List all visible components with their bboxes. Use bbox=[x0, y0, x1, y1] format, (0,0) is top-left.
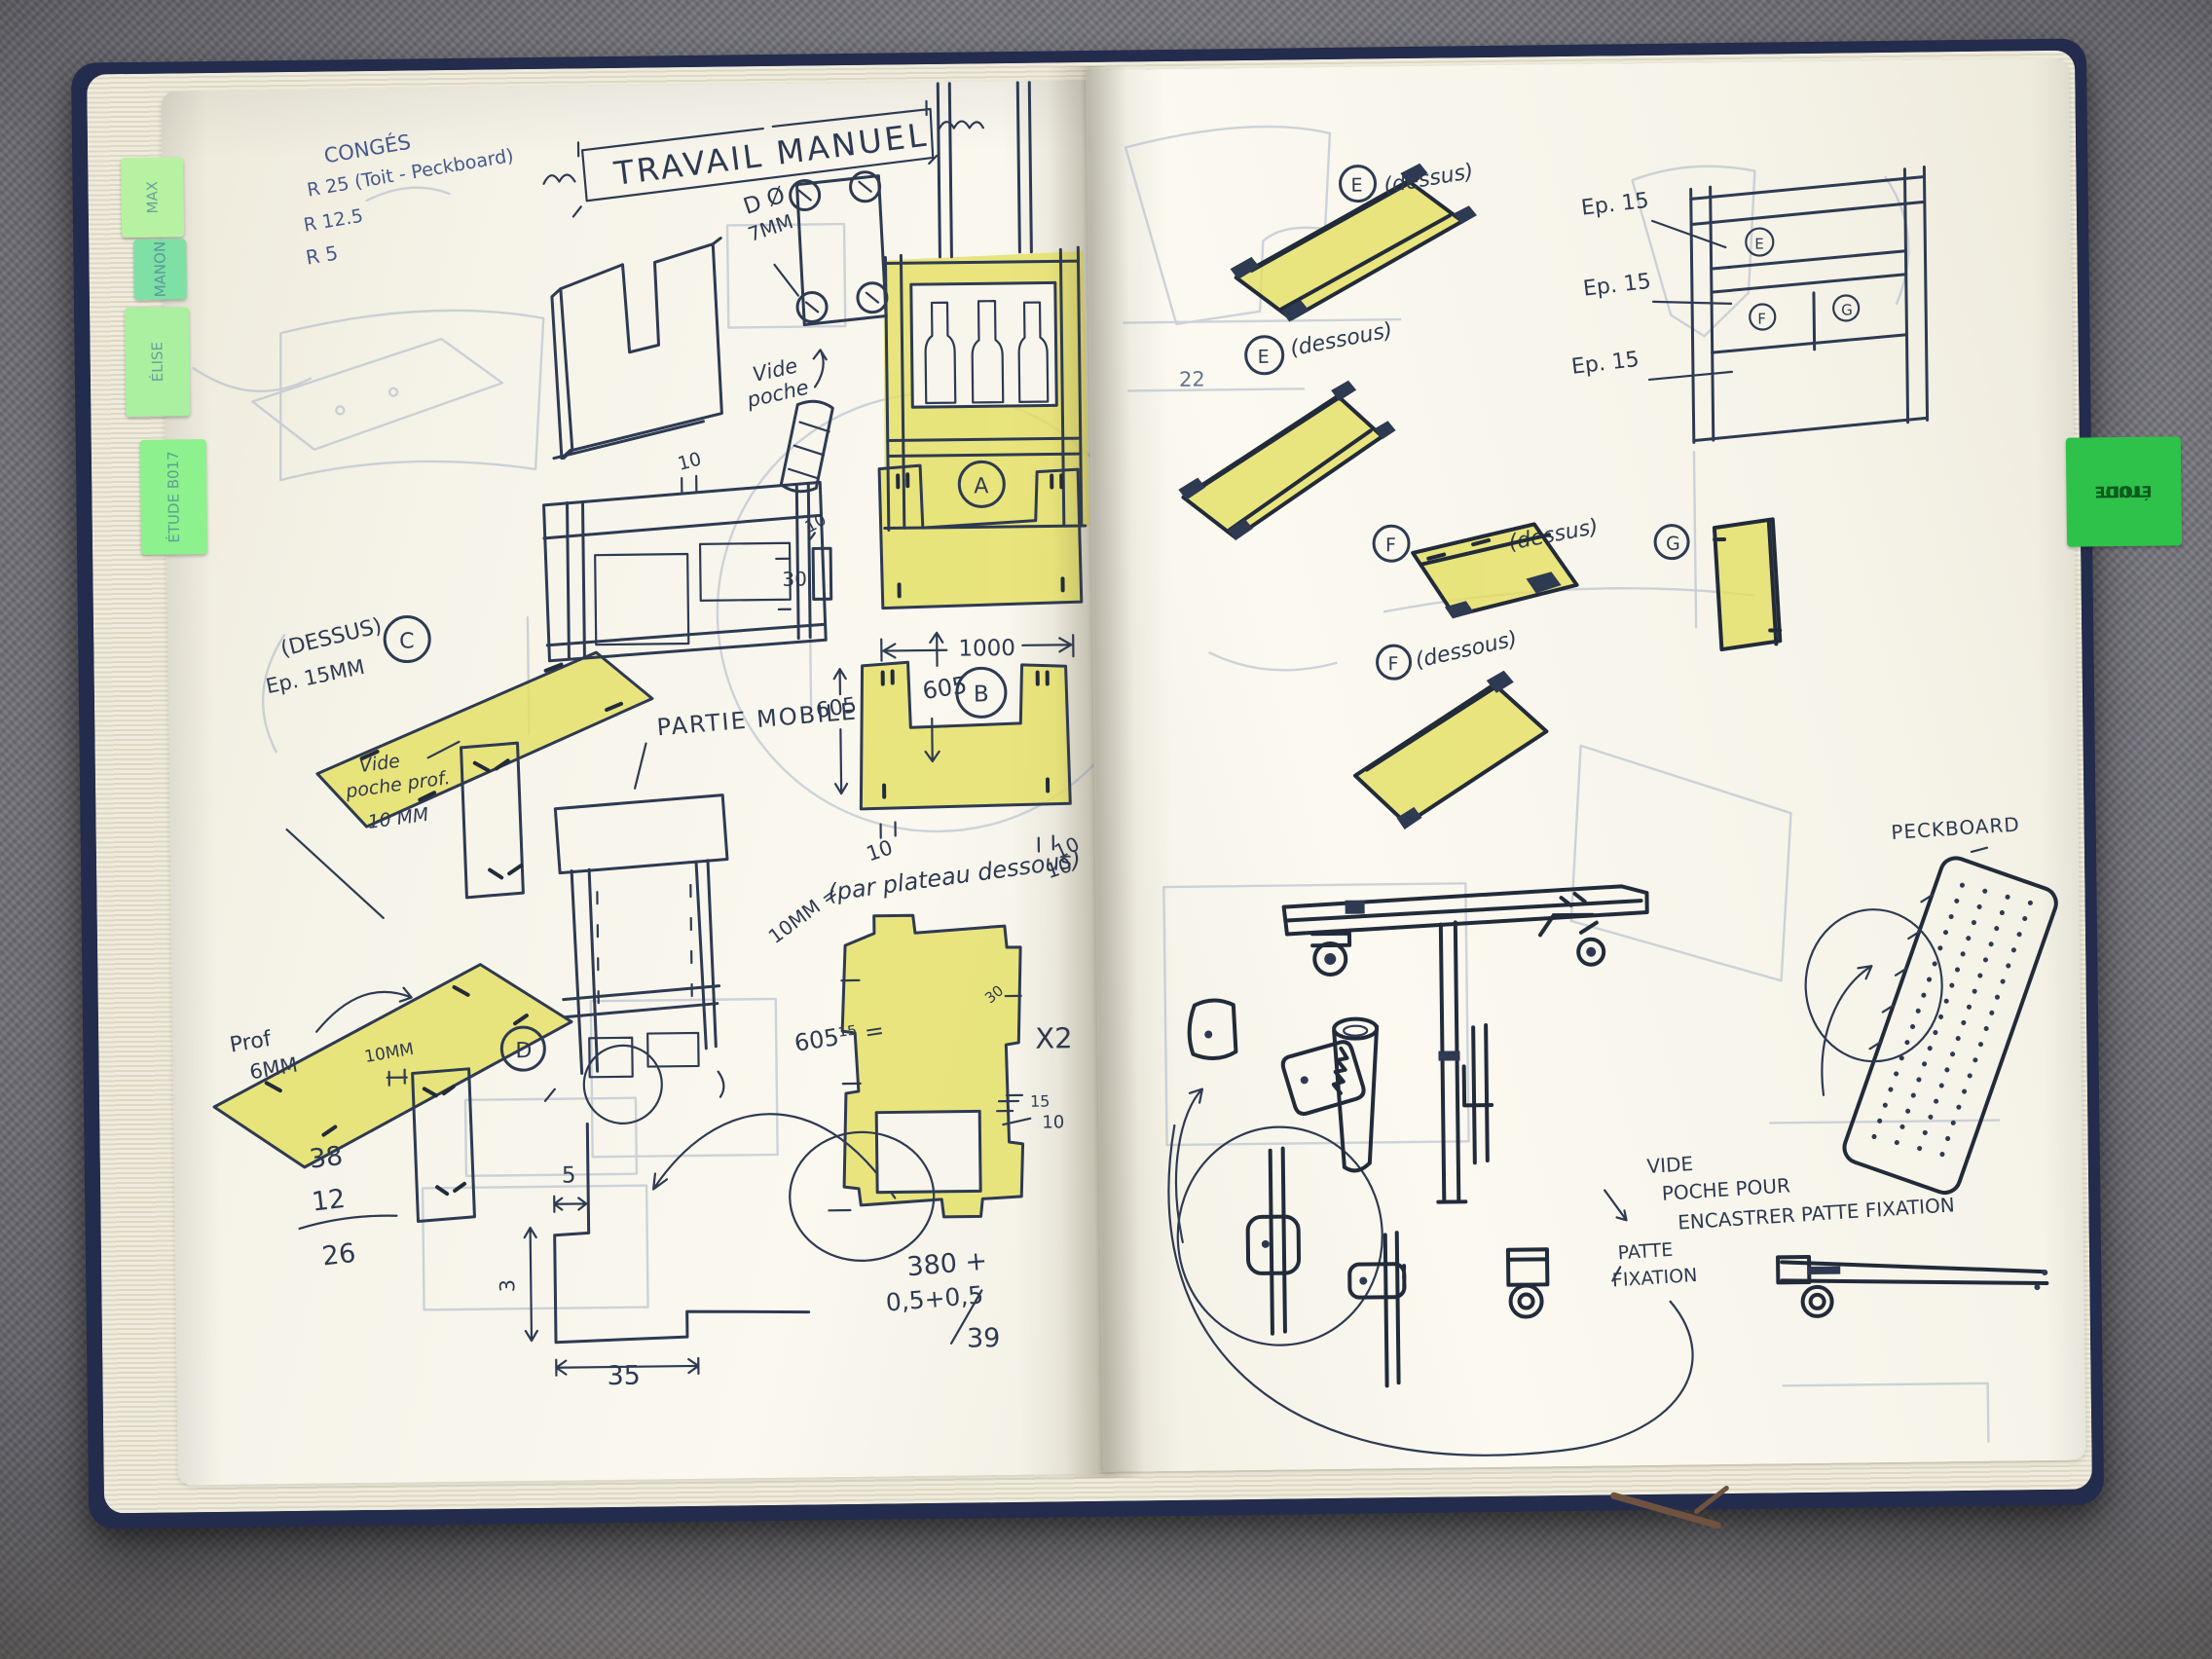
f-bottom-letter: F bbox=[1387, 653, 1398, 675]
spacer-h: 30 bbox=[782, 568, 807, 591]
plateau-dim: 10MM = bbox=[764, 881, 843, 948]
f-bottom-label: (dessous) bbox=[1413, 627, 1519, 674]
frame-drawing: Ep. 15 Ep. 15 Ep. 15 E F G bbox=[1567, 166, 1927, 443]
frame-letter-left: F bbox=[1757, 310, 1766, 327]
frame-letter-top: E bbox=[1754, 235, 1764, 252]
ep15-2: Ep. 15 bbox=[1582, 270, 1652, 302]
xray-qty: X2 bbox=[1035, 1021, 1073, 1054]
e-top-letter: E bbox=[1350, 175, 1362, 197]
c-ep-label: Ep. 15MM bbox=[264, 655, 367, 698]
e-bottom-label: (dessous) bbox=[1288, 318, 1394, 361]
sticky-tab-label: MAX bbox=[143, 181, 161, 214]
sticky-tab-label: MANON bbox=[151, 241, 169, 298]
sticky-tab-label: ÉTUDE B017 bbox=[165, 451, 183, 543]
pencil-underlay-right bbox=[1122, 118, 2004, 1452]
patte-fixation-hardware bbox=[1508, 1249, 1548, 1316]
spacer-w: 10 bbox=[802, 510, 830, 537]
sticky-tab-left-3: ÉLISE bbox=[125, 307, 190, 417]
sticky-tab-label: ÉLISE bbox=[148, 342, 166, 382]
xray-t15: 15 bbox=[1030, 1092, 1051, 1111]
calc-result: 39 bbox=[967, 1323, 1001, 1353]
sticky-tab-left-2: MANON bbox=[133, 239, 187, 300]
sticky-tab-left-1: MAX bbox=[121, 157, 184, 238]
e-top-label: (dessus) bbox=[1382, 160, 1475, 199]
g-letter: G bbox=[1666, 534, 1680, 555]
a-letter: A bbox=[974, 474, 988, 498]
shelf-dim-10: 10 bbox=[676, 449, 704, 475]
xray-t10: 10 bbox=[1042, 1112, 1064, 1132]
b-tick-left: 10 bbox=[864, 835, 896, 866]
pocket-line2: POCHE POUR bbox=[1661, 1173, 1791, 1204]
page-title: TRAVAIL MANUEL bbox=[611, 115, 931, 193]
right-page: E (dessus) 22 E (dessous) Ep. 15 Ep. 15 … bbox=[1086, 58, 2086, 1472]
open-notebook: MAX MANON ÉLISE ÉTUDE B017 TOITÉTUDE bbox=[85, 45, 2094, 1514]
left-page-sketch: CONGÉS R 25 (Toit - Peckboard) R 12.5 R … bbox=[161, 80, 1102, 1485]
c-letter: C bbox=[399, 629, 415, 653]
subtraction-note: 38 12 26 bbox=[298, 1140, 397, 1272]
frame-letter-right: G bbox=[1841, 301, 1853, 318]
b-dim-width: 1000 bbox=[958, 636, 1015, 662]
f-top-letter: F bbox=[1385, 535, 1396, 556]
ep15-3: Ep. 15 bbox=[1570, 348, 1641, 380]
patte-line1: PATTE bbox=[1617, 1239, 1674, 1265]
angled-plate-sketch bbox=[1283, 1042, 1364, 1114]
step-dim-top: 5 bbox=[562, 1162, 576, 1188]
ep15-1: Ep. 15 bbox=[1580, 189, 1650, 221]
drill-holes-sketch: D Ø 7MM bbox=[740, 172, 887, 326]
left-page: CONGÉS R 25 (Toit - Peckboard) R 12.5 R … bbox=[161, 80, 1102, 1485]
right-page-sketch: E (dessus) 22 E (dessous) Ep. 15 Ep. 15 … bbox=[1086, 58, 2086, 1472]
peckboard-sketch: PECKBOARD bbox=[1804, 812, 2064, 1198]
sticky-tab-right: TOITÉTUDE bbox=[2066, 436, 2182, 546]
dotted-bracket-sketch bbox=[1349, 1233, 1406, 1386]
plateau-note: (par plateau dessous) bbox=[827, 845, 1083, 906]
c-dessus-label: (DESSUS) bbox=[278, 614, 385, 662]
peckboard-label: PECKBOARD bbox=[1891, 812, 2021, 844]
sticky-tab-left-4: ÉTUDE B017 bbox=[140, 439, 207, 555]
d-prof-label: Prof bbox=[228, 1027, 274, 1058]
u-panel-sketch bbox=[551, 239, 723, 459]
e-bottom-letter: E bbox=[1258, 347, 1270, 368]
sub-a: 38 bbox=[308, 1141, 345, 1175]
congés-line1: CONGÉS bbox=[322, 129, 413, 168]
patte-line2: FIXATION bbox=[1611, 1265, 1698, 1292]
pocket-note: VIDE POCHE POUR ENCASTRER PATTE FIXATION bbox=[1604, 1149, 1956, 1235]
d-letter: D bbox=[515, 1039, 532, 1063]
step-dim-side: 3 bbox=[496, 1279, 519, 1293]
pocket-line1: VIDE bbox=[1646, 1152, 1694, 1178]
vide-poche-note: Vide poche bbox=[744, 350, 834, 492]
bar-wheel-sketch bbox=[1778, 1254, 2048, 1316]
carpet-background: MAX MANON ÉLISE ÉTUDE B017 TOITÉTUDE bbox=[0, 0, 2212, 1659]
congés-line4: R 5 bbox=[304, 240, 340, 269]
calc-line1: 380 + bbox=[905, 1246, 988, 1283]
calc-note: 380 + 0,5+0,5 39 bbox=[884, 1245, 1000, 1354]
post-bracket-sketch bbox=[1435, 922, 1493, 1202]
sub-result: 26 bbox=[320, 1238, 357, 1272]
note-22: 22 bbox=[1179, 368, 1205, 391]
step-dim-bottom: 35 bbox=[607, 1361, 641, 1391]
congés-line3: R 12.5 bbox=[302, 205, 364, 237]
notes-congés: CONGÉS R 25 (Toit - Peckboard) R 12.5 R … bbox=[301, 128, 516, 269]
sub-b: 12 bbox=[311, 1184, 348, 1218]
b-letter: B bbox=[974, 682, 989, 707]
plate-arrow-sketch bbox=[1174, 1000, 1238, 1242]
patte-fixation-label: PATTE FIXATION bbox=[1611, 1238, 1698, 1291]
